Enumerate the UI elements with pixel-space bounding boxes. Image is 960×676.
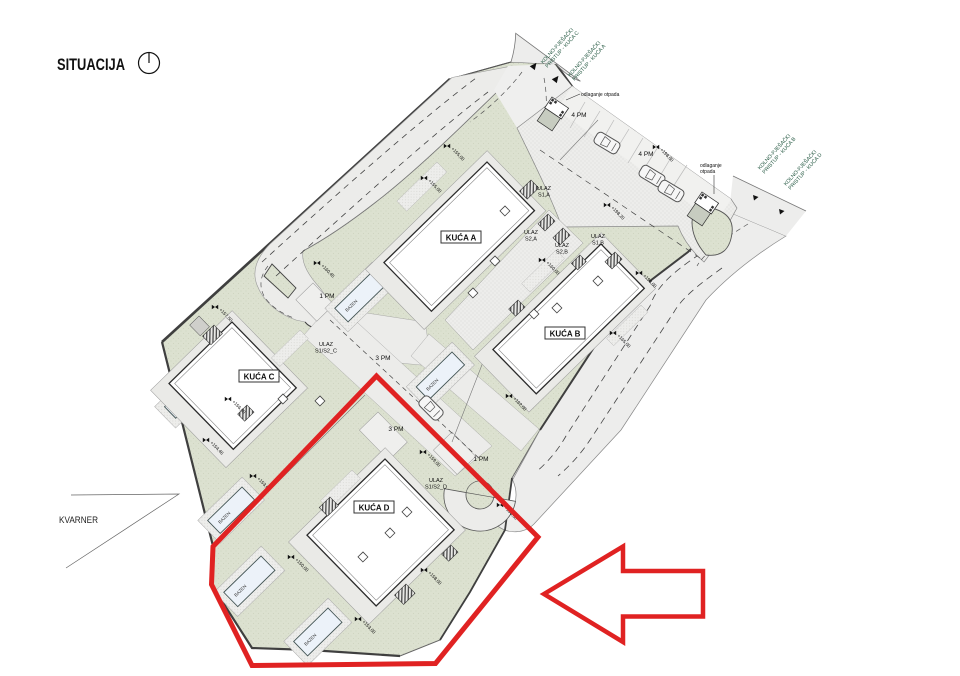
svg-text:ULAZ: ULAZ: [319, 342, 334, 348]
svg-text:ULAZ: ULAZ: [555, 243, 570, 249]
svg-text:ULAZ: ULAZ: [524, 230, 539, 236]
svg-text:KUĆA D: KUĆA D: [359, 504, 390, 513]
svg-text:KVARNER: KVARNER: [59, 515, 98, 525]
svg-text:3 PM: 3 PM: [388, 426, 403, 433]
svg-text:KUĆA A: KUĆA A: [446, 234, 477, 243]
svg-text:4 PM: 4 PM: [571, 112, 586, 119]
svg-text:KUĆA B: KUĆA B: [550, 330, 581, 339]
svg-text:1 PM: 1 PM: [473, 456, 488, 463]
svg-text:3 PM: 3 PM: [375, 355, 390, 362]
svg-text:4 PM: 4 PM: [638, 151, 653, 158]
svg-text:SITUACIJA: SITUACIJA: [57, 55, 125, 74]
svg-text:S1,B: S1,B: [592, 241, 604, 247]
svg-text:S1,A: S1,A: [538, 193, 550, 199]
svg-text:odlaganje otpada: odlaganje otpada: [581, 92, 620, 98]
svg-text:ULAZ: ULAZ: [537, 186, 552, 192]
svg-text:S1/S2_D: S1/S2_D: [425, 485, 447, 491]
svg-text:KUĆA C: KUĆA C: [244, 373, 275, 382]
svg-text:S1/S2_C: S1/S2_C: [315, 349, 337, 355]
svg-text:ULAZ: ULAZ: [429, 478, 444, 484]
svg-text:S2,A: S2,A: [525, 237, 537, 243]
svg-text:S2,B: S2,B: [556, 250, 568, 256]
svg-text:otpada: otpada: [700, 169, 716, 175]
svg-text:1 PM: 1 PM: [319, 293, 334, 300]
svg-text:ULAZ: ULAZ: [591, 234, 606, 240]
